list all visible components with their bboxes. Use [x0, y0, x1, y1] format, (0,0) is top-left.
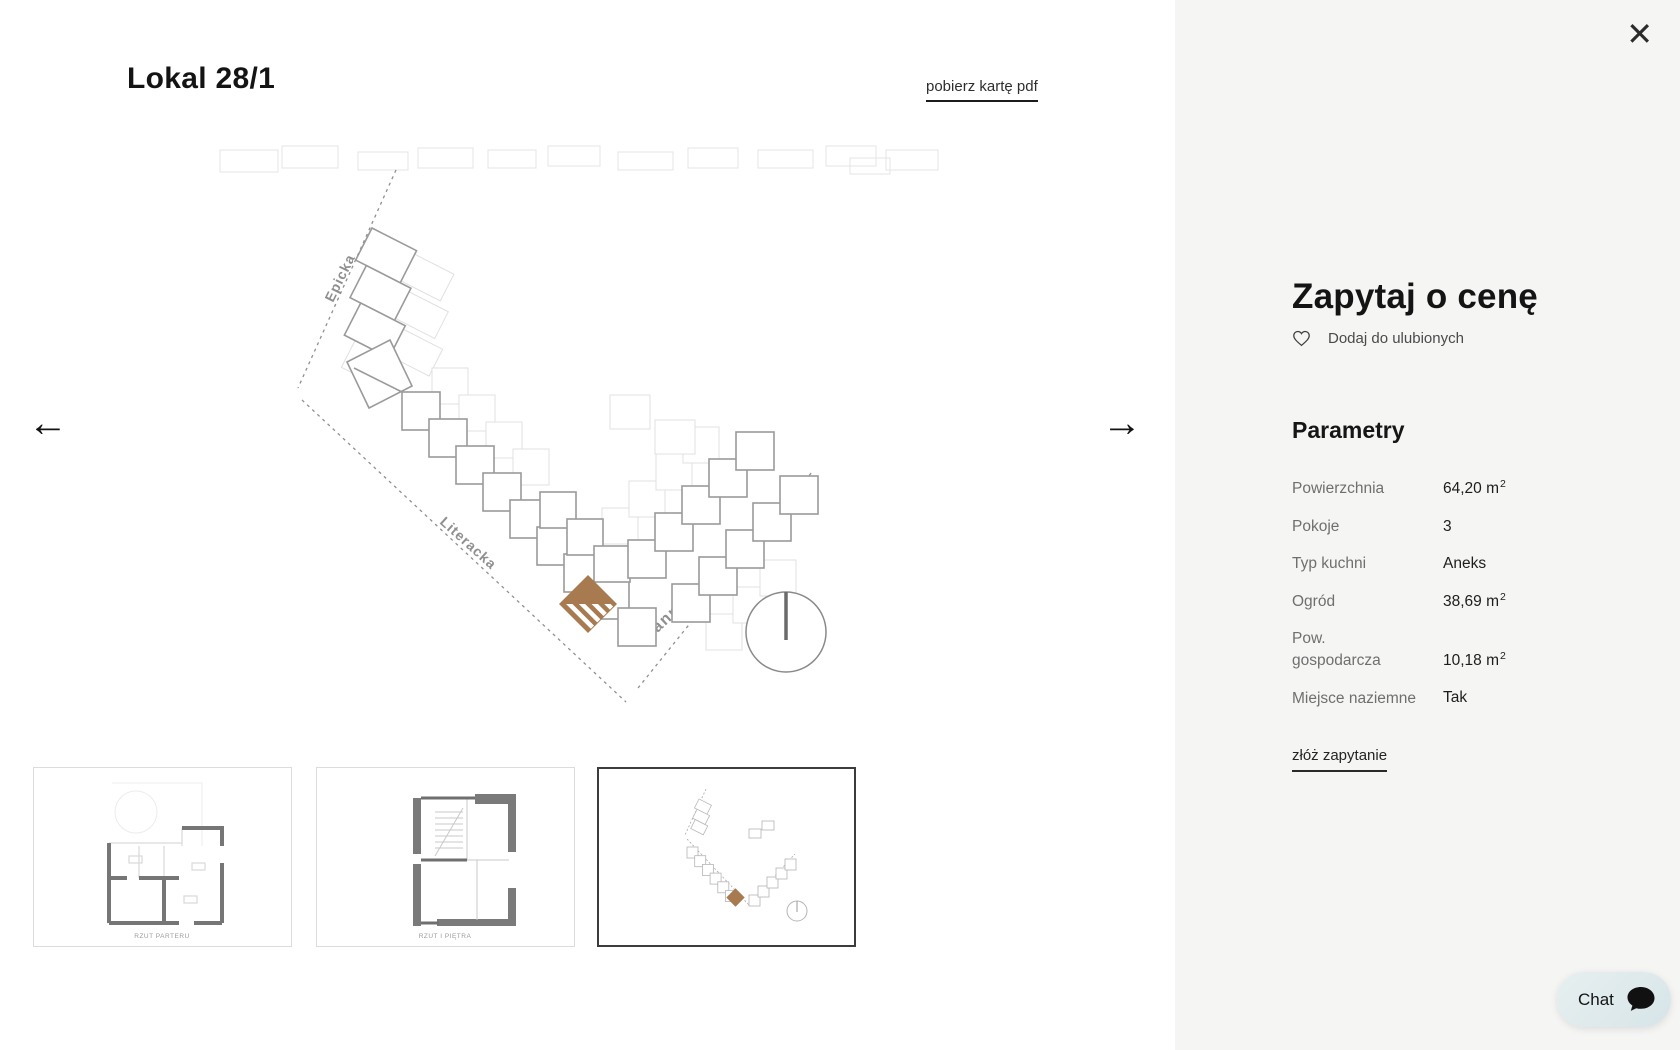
param-value: Tak	[1443, 686, 1622, 710]
thumbnail-caption: RZUT PARTERU	[134, 933, 189, 940]
compass-icon	[746, 592, 826, 672]
favorites-label: Dodaj do ulubionych	[1328, 330, 1464, 347]
param-value: 3	[1443, 515, 1622, 539]
chat-label: Chat	[1578, 990, 1614, 1010]
param-value: 10,18 m2	[1443, 649, 1622, 673]
site-plan-image: Epicka Literacka Hanny Malewskiej	[150, 140, 1030, 750]
param-label: Pokoje	[1292, 516, 1443, 538]
chat-button[interactable]: Chat	[1557, 972, 1671, 1027]
table-row: Pow. gospodarcza 10,18 m2	[1292, 628, 1622, 673]
parameters-table: Powierzchnia 64,20 m2 Pokoje 3 Typ kuchn…	[1292, 477, 1622, 724]
param-label: Powierzchnia	[1292, 478, 1443, 500]
prev-arrow-button[interactable]: ←	[28, 403, 68, 443]
thumbnail-first-floor[interactable]: RZUT I PIĘTRA	[316, 767, 575, 947]
table-row: Ogród 38,69 m2	[1292, 590, 1622, 614]
table-row: Miejsce naziemne Tak	[1292, 686, 1622, 710]
thumbnail-ground-floor[interactable]: RZUT PARTERU	[33, 767, 292, 947]
chat-bubble-icon	[1626, 986, 1656, 1013]
param-value: 64,20 m2	[1443, 477, 1622, 501]
table-row: Typ kuchni Aneks	[1292, 552, 1622, 576]
page-title: Lokal 28/1	[127, 62, 275, 96]
table-row: Pokoje 3	[1292, 515, 1622, 539]
heart-icon	[1292, 330, 1311, 347]
street-label-literacka: Literacka	[437, 513, 500, 572]
table-row: Powierzchnia 64,20 m2	[1292, 477, 1622, 501]
add-to-favorites-button[interactable]: Dodaj do ulubionych	[1292, 330, 1464, 347]
param-label: Miejsce naziemne	[1292, 688, 1443, 710]
thumbnail-site-plan[interactable]	[597, 767, 856, 947]
param-label: Typ kuchni	[1292, 553, 1443, 575]
faint-buildings-top	[220, 146, 938, 174]
submit-inquiry-link[interactable]: złóż zapytanie	[1292, 747, 1387, 772]
close-icon[interactable]: ✕	[1626, 18, 1653, 50]
next-arrow-button[interactable]: →	[1102, 403, 1142, 443]
ask-price-heading: Zapytaj o cenę	[1292, 277, 1538, 317]
pdf-download-link[interactable]: pobierz kartę pdf	[926, 78, 1038, 102]
thumbnail-caption: RZUT I PIĘTRA	[419, 933, 472, 940]
param-label: Pow. gospodarcza	[1292, 628, 1443, 673]
param-label: Ogród	[1292, 591, 1443, 613]
details-panel: ✕ Zapytaj o cenę Dodaj do ulubionych Par…	[1175, 0, 1680, 1050]
param-value: 38,69 m2	[1443, 590, 1622, 614]
parameters-heading: Parametry	[1292, 417, 1405, 444]
param-value: Aneks	[1443, 552, 1622, 576]
